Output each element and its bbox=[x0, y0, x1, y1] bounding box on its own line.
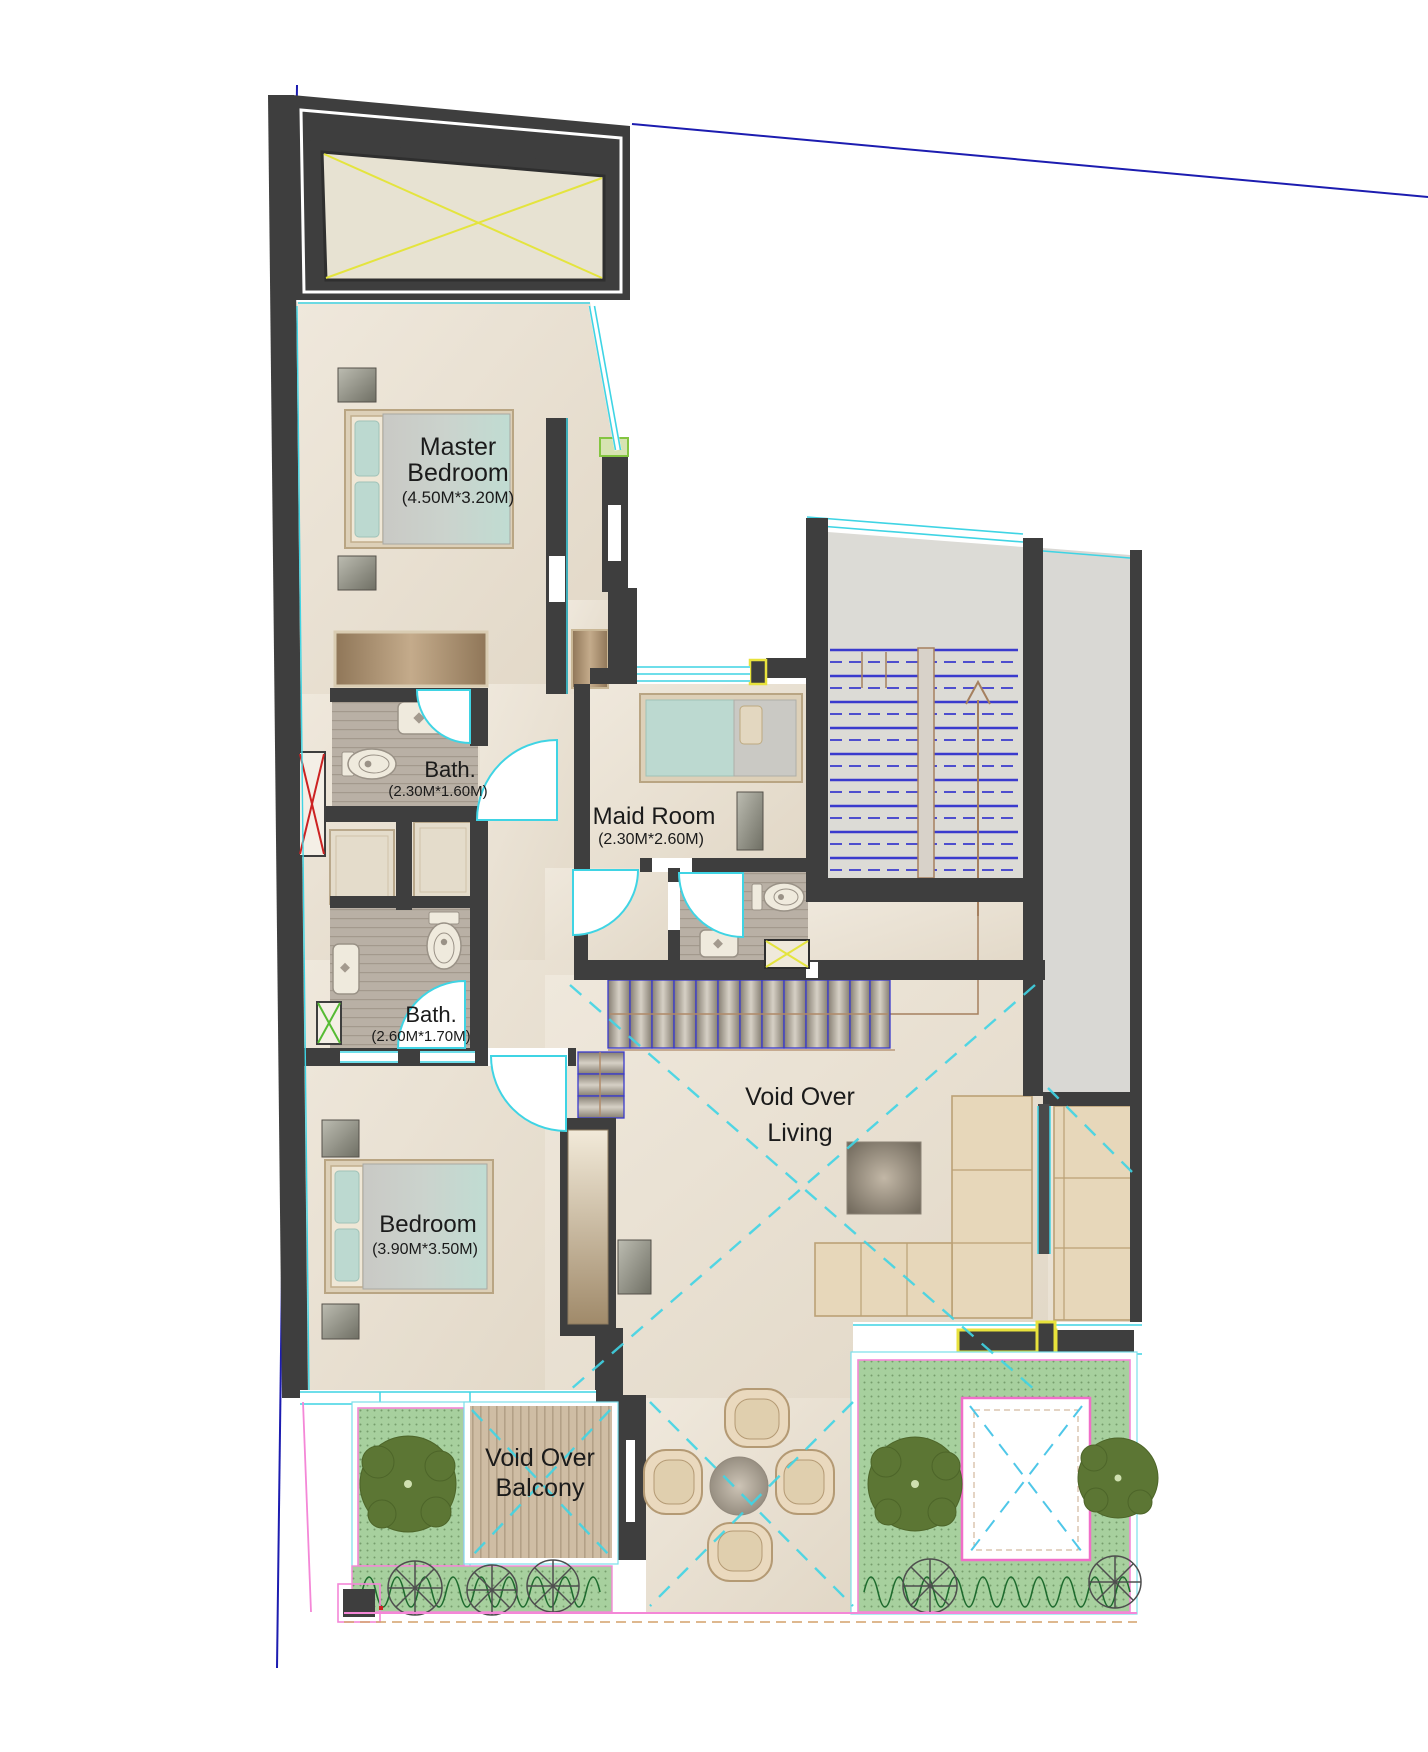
floor-plan: Master Bedroom (4.50M*3.20M) Bath. (2.30… bbox=[0, 0, 1428, 1752]
vanity-cabinet-icon bbox=[414, 822, 472, 898]
label-bath-master: Bath. bbox=[424, 757, 475, 782]
coffee-table-icon bbox=[847, 1142, 921, 1214]
dims-master-bedroom: (4.50M*3.20M) bbox=[402, 488, 514, 507]
nightstand-icon bbox=[338, 556, 376, 590]
maid-cabinet-icon bbox=[737, 792, 763, 850]
label-bedroom: Bedroom bbox=[379, 1211, 476, 1238]
right-room-divider-wall bbox=[1038, 1104, 1050, 1254]
sink-icon bbox=[333, 944, 359, 994]
dining-table-icon bbox=[710, 1457, 768, 1515]
top-shaft bbox=[292, 95, 630, 300]
sofa-right-icon bbox=[1054, 1106, 1132, 1320]
tree-icon bbox=[360, 1436, 456, 1532]
label-master-bedroom: Master bbox=[420, 433, 496, 461]
core-room bbox=[1043, 548, 1130, 1092]
stair-left-wall bbox=[806, 518, 828, 902]
label-bath-shared: Bath. bbox=[405, 1002, 456, 1027]
core-room-floor bbox=[1043, 548, 1130, 1092]
dims-maid-room: (2.30M*2.60M) bbox=[598, 831, 704, 848]
maid-bed-icon bbox=[640, 694, 802, 782]
chair-icon bbox=[644, 1450, 702, 1514]
chair-icon bbox=[725, 1389, 789, 1447]
column-yellow-marker bbox=[750, 660, 766, 684]
balcony-pillar-wall bbox=[616, 1395, 646, 1560]
dims-bath-shared: (2.60M*1.70M) bbox=[371, 1028, 470, 1045]
label-void-over-balcony: Void Over bbox=[485, 1444, 595, 1472]
toilet-icon bbox=[752, 883, 804, 911]
chair-icon bbox=[776, 1450, 834, 1514]
skylight-void bbox=[962, 1398, 1090, 1560]
boundary-line-top bbox=[632, 124, 1428, 197]
nightstand-icon bbox=[322, 1120, 359, 1157]
terrace-pink-boundary bbox=[303, 1402, 311, 1612]
wardrobe-icon bbox=[335, 632, 487, 686]
maid-window bbox=[637, 666, 750, 682]
stair-right-wall bbox=[1023, 538, 1043, 1096]
dims-bedroom: (3.90M*3.50M) bbox=[372, 1241, 478, 1258]
label-void-over-living: Void Over bbox=[745, 1083, 855, 1111]
stair-turn-block bbox=[578, 1052, 624, 1118]
svg-text:Living: Living bbox=[767, 1119, 832, 1147]
tree-icon bbox=[868, 1437, 962, 1531]
stair-bottom-wall bbox=[806, 878, 1043, 902]
duct-shaft-green bbox=[317, 1002, 341, 1044]
nightstand-icon bbox=[338, 368, 376, 402]
exterior-wall-right bbox=[1130, 550, 1142, 1356]
chair-icon bbox=[708, 1523, 772, 1581]
toilet-icon bbox=[427, 912, 461, 969]
vanity-cabinet-icon bbox=[330, 830, 394, 904]
nightstand-icon bbox=[322, 1304, 359, 1339]
svg-text:Balcony: Balcony bbox=[496, 1474, 585, 1502]
duct-shaft-yellow bbox=[765, 940, 809, 968]
dims-bath-master: (2.30M*1.60M) bbox=[388, 783, 487, 800]
stair-stringer bbox=[918, 648, 934, 878]
label-maid-room: Maid Room bbox=[593, 803, 716, 830]
maid-left-wall bbox=[574, 684, 590, 878]
tree-icon bbox=[1078, 1438, 1158, 1518]
svg-text:Bedroom: Bedroom bbox=[407, 459, 508, 487]
toilet-icon bbox=[342, 749, 396, 779]
